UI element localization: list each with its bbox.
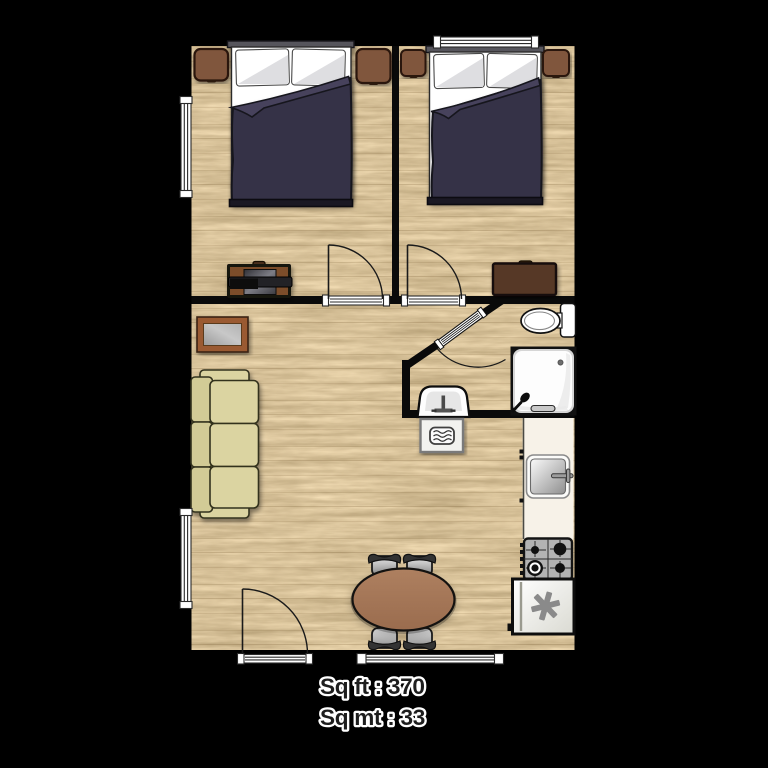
svg-text:Sq ft : 370: Sq ft : 370 — [320, 674, 425, 699]
svg-text:Sq mt : 33: Sq mt : 33 — [320, 705, 425, 730]
